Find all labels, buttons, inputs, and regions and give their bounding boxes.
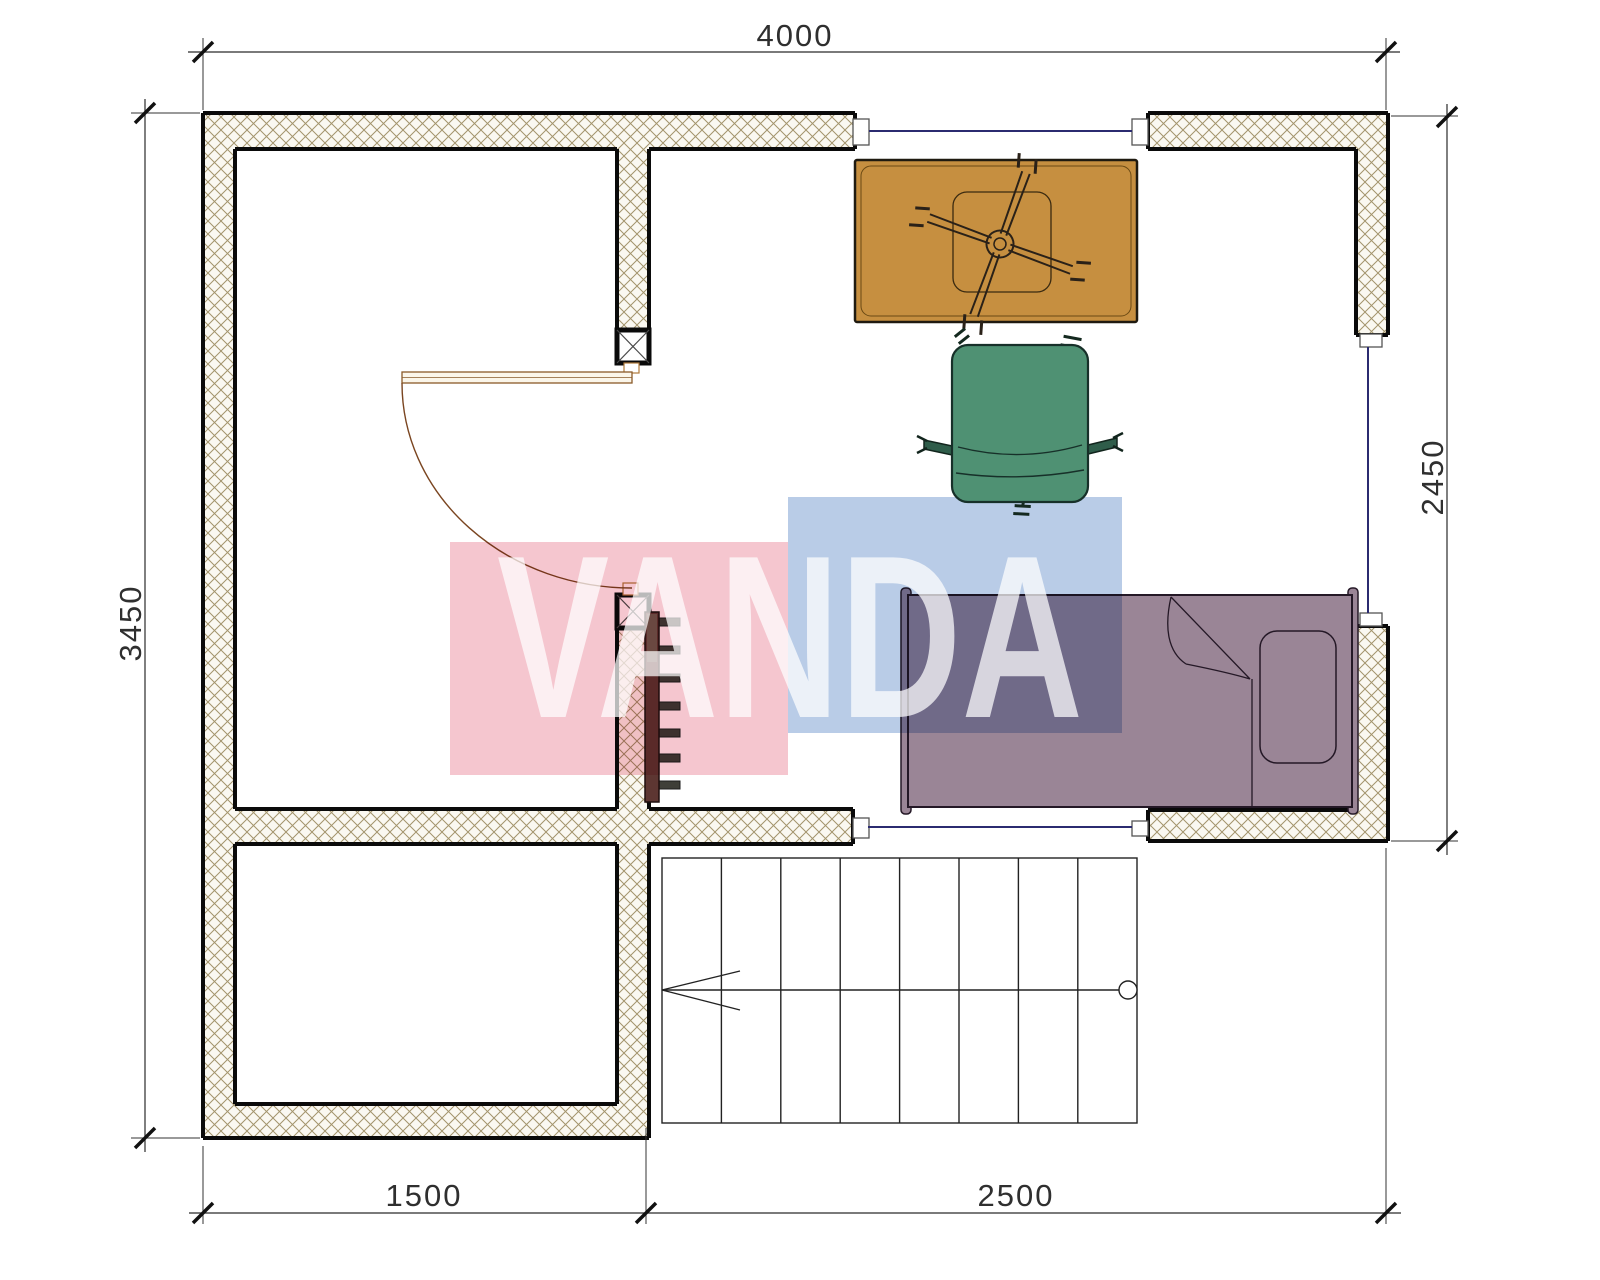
armchair-armrest-left — [924, 440, 952, 455]
wall-mid-horizontal — [203, 809, 853, 844]
desk — [855, 126, 1137, 362]
floor-plan-page: 4000 3450 2450 1500 2500 VANDA — [0, 0, 1600, 1280]
desk-top — [855, 160, 1137, 322]
dim-label-right: 2450 — [1415, 439, 1450, 516]
window-jamb — [853, 818, 869, 838]
bed-pillow — [1260, 631, 1336, 763]
wall-mid-upper — [617, 149, 649, 330]
armchair-armrest-right — [1088, 438, 1117, 454]
wall-top-right — [1148, 113, 1388, 149]
window-jamb — [853, 119, 869, 145]
dim-label-top: 4000 — [757, 18, 834, 53]
armchair-caster-top-left — [954, 329, 970, 344]
armchair — [917, 329, 1123, 517]
armchair-seat — [952, 345, 1088, 502]
dim-label-bottom-left: 1500 — [386, 1178, 463, 1213]
window-jamb — [1360, 334, 1382, 347]
wall-right-lower — [1356, 626, 1388, 841]
floor-plan-canvas: 4000 3450 2450 1500 2500 VANDA — [0, 0, 1600, 1280]
watermark: VANDA — [450, 497, 1122, 775]
dim-label-bottom-right: 2500 — [978, 1178, 1055, 1213]
wall-right-upper — [1356, 113, 1388, 335]
window-jamb — [1360, 613, 1382, 626]
wall-left — [203, 113, 235, 1138]
window-jamb — [1132, 821, 1148, 836]
window-jamb — [1132, 119, 1148, 145]
wall-endcap-upper — [617, 330, 649, 363]
dim-label-left: 3450 — [113, 585, 148, 662]
watermark-text: VANDA — [497, 508, 1083, 767]
stairs — [662, 858, 1137, 1123]
wall-bottom-left — [203, 1104, 649, 1138]
wall-top-left — [203, 113, 855, 149]
stairs-start-circle — [1119, 981, 1137, 999]
